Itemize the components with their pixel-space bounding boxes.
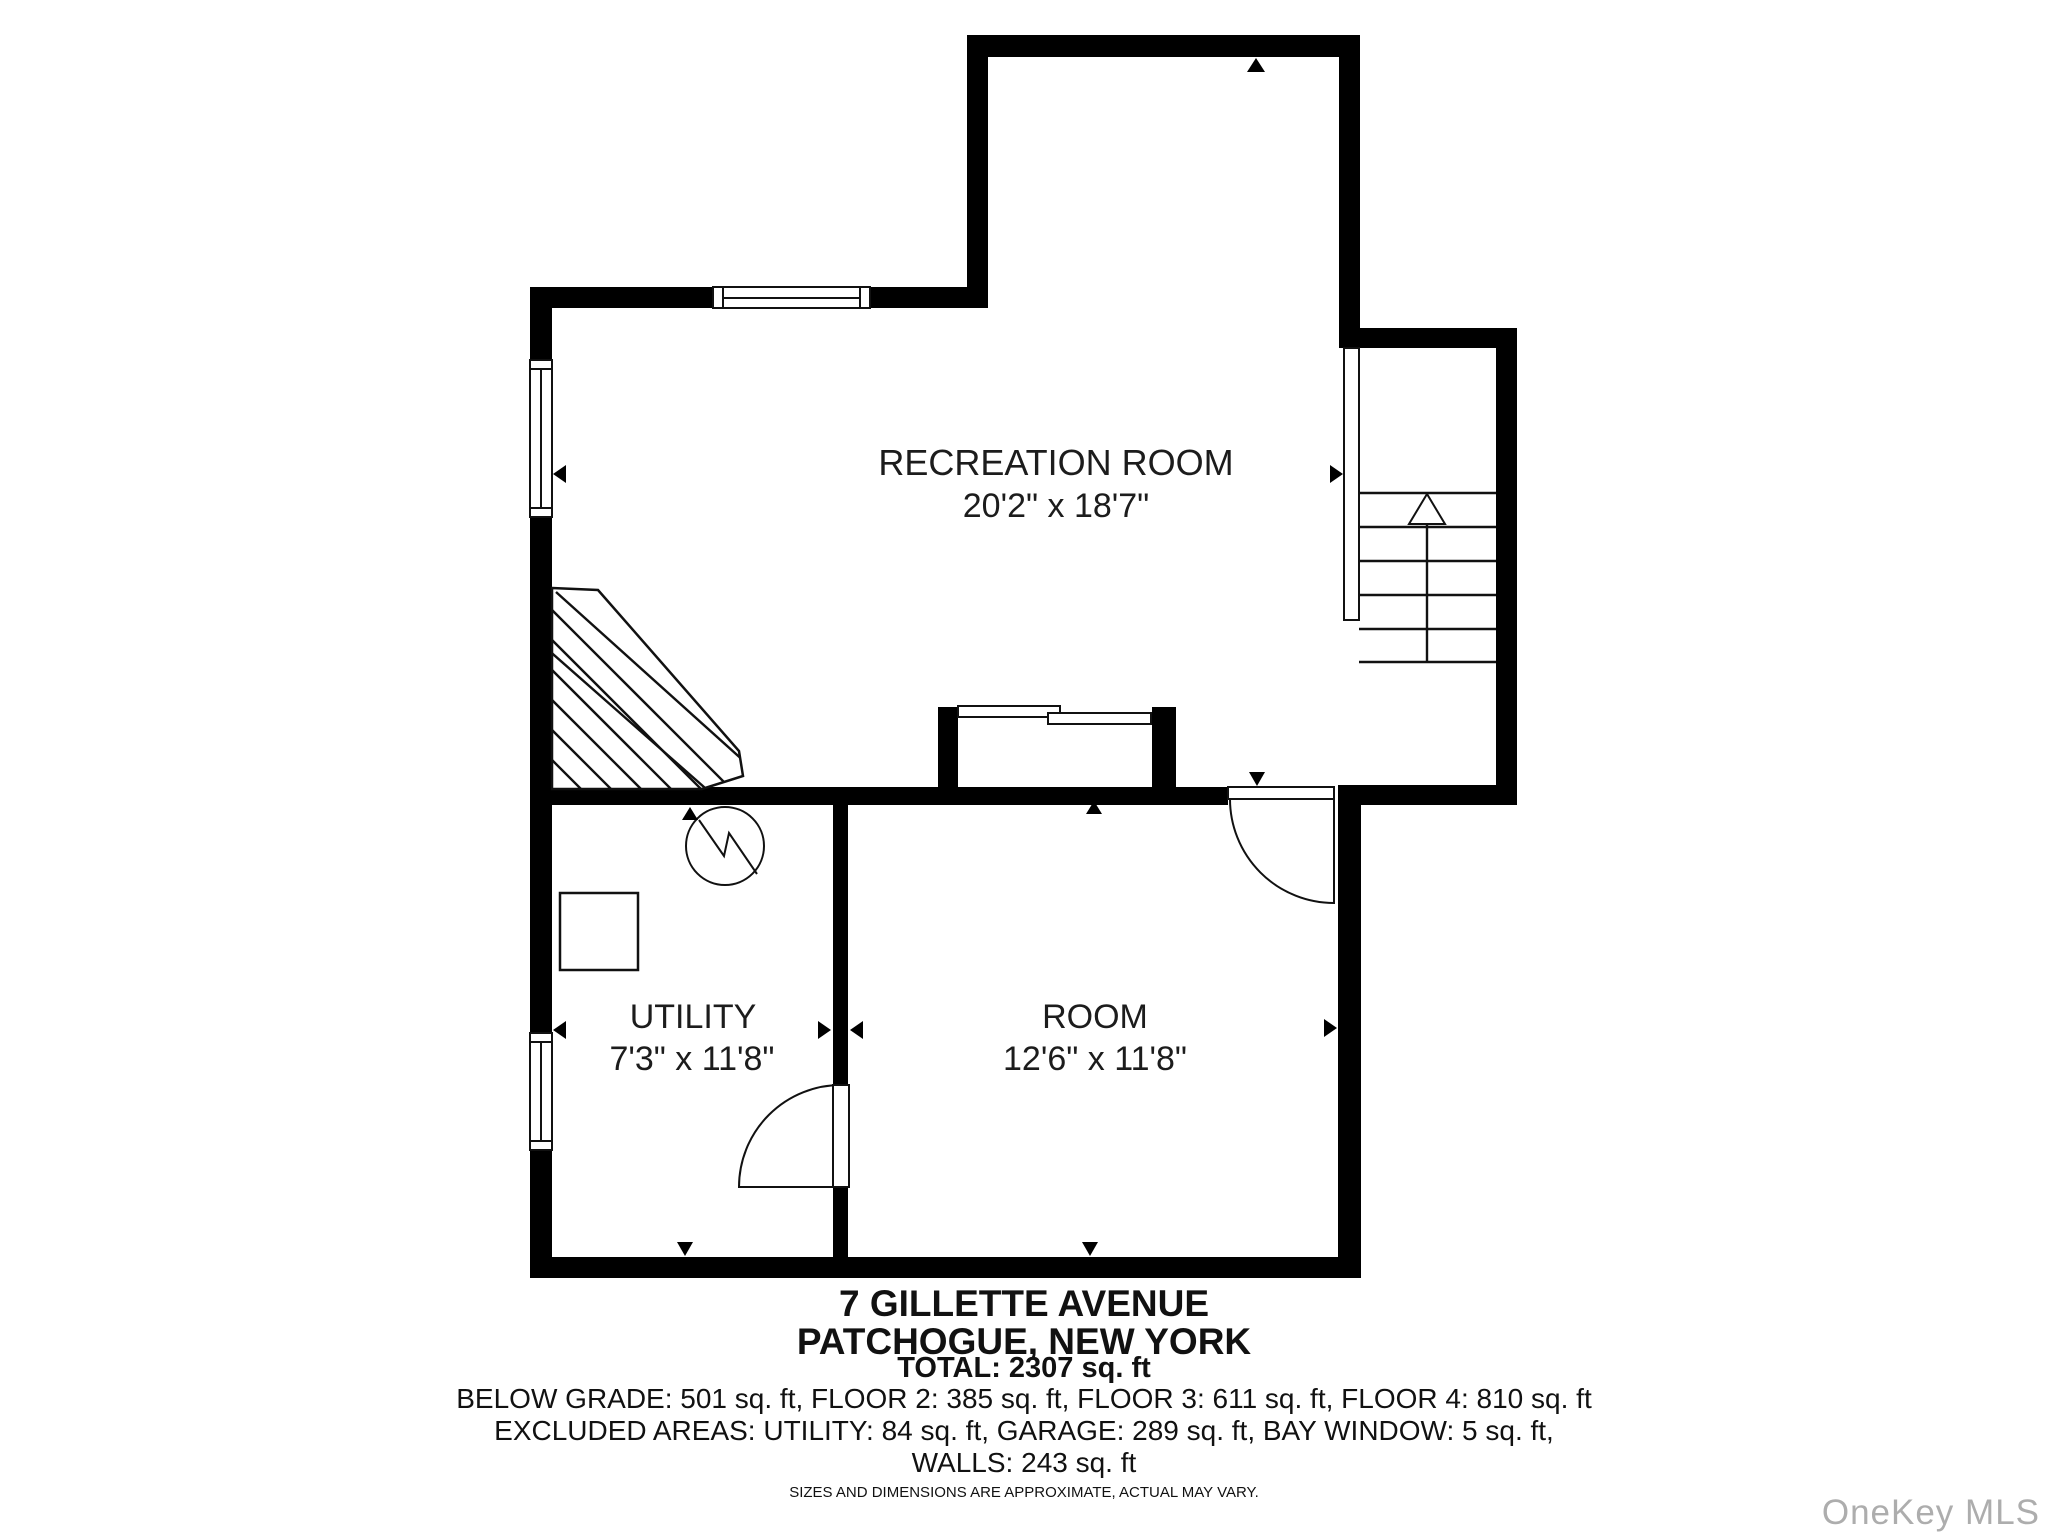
address-line1: 7 GILLETTE AVENUE	[839, 1283, 1209, 1324]
wall-protrusion-left	[967, 35, 988, 308]
marker-up-icon	[1247, 58, 1265, 72]
bay-sliding-window-icon	[958, 706, 1151, 724]
marker-right-icon	[1330, 465, 1343, 483]
marker-up-icon	[682, 807, 698, 820]
marker-right-icon	[1324, 1019, 1337, 1037]
marker-left-icon	[553, 1021, 566, 1039]
marker-left-icon	[553, 465, 566, 483]
utility-symbols	[560, 807, 764, 970]
wall-utility-divider-upper	[833, 805, 848, 1085]
window-icon	[713, 287, 870, 308]
wall-bay-pillar-right	[1152, 707, 1176, 789]
utility-room-dimensions: 7'3" x 11'8"	[609, 1040, 774, 1078]
marker-down-icon	[677, 1242, 693, 1256]
doors	[739, 787, 1334, 1187]
marker-down-icon	[1249, 772, 1265, 786]
stairs-up-arrow-icon	[1409, 494, 1445, 662]
floor-plan-page: RECREATION ROOM 20'2" x 18'7" UTILITY 7'…	[0, 0, 2048, 1536]
wall-stairwell-bottom	[1360, 785, 1517, 805]
floor-areas: BELOW GRADE: 501 sq. ft, FLOOR 2: 385 sq…	[456, 1383, 1592, 1414]
disclaimer: SIZES AND DIMENSIONS ARE APPROXIMATE, AC…	[789, 1484, 1259, 1501]
electrical-panel-icon	[686, 807, 764, 885]
onekey-mls-watermark: OneKey MLS	[1822, 1493, 2040, 1532]
total-area: TOTAL: 2307 sq. ft	[897, 1352, 1151, 1384]
marker-left-icon	[850, 1021, 863, 1039]
wall-utility-divider-lower	[833, 1187, 848, 1257]
room-label: ROOM	[1042, 998, 1148, 1036]
floor-plan-drawing: RECREATION ROOM 20'2" x 18'7" UTILITY 7'…	[0, 0, 2048, 1536]
marker-right-icon	[818, 1021, 831, 1039]
recreation-room-label: RECREATION ROOM	[878, 442, 1233, 483]
wall-protrusion-top	[967, 35, 1360, 57]
door-swing-icon	[739, 1085, 849, 1187]
recreation-room-dimensions: 20'2" x 18'7"	[963, 487, 1149, 525]
wall-bay-pillar-left	[938, 707, 958, 789]
wall-stairwell-top	[1360, 328, 1517, 348]
walls	[530, 35, 1517, 1278]
walls-area: WALLS: 243 sq. ft	[912, 1447, 1137, 1478]
wall-protrusion-right	[1339, 35, 1360, 348]
stair-open-edge	[1344, 348, 1359, 620]
door-swing-icon	[1228, 787, 1334, 903]
room-dimensions: 12'6" x 11'8"	[1003, 1040, 1187, 1078]
wall-room-right	[1338, 785, 1361, 1278]
excluded-areas: EXCLUDED AREAS: UTILITY: 84 sq. ft, GARA…	[494, 1415, 1554, 1446]
stairs-right	[1344, 348, 1496, 662]
equipment-box-icon	[560, 893, 638, 970]
wall-right-outer	[1496, 328, 1517, 805]
marker-down-icon	[1082, 1242, 1098, 1256]
wall-bottom-outer	[530, 1257, 1361, 1278]
footer-text: 7 GILLETTE AVENUE PATCHOGUE, NEW YORK TO…	[456, 1283, 1592, 1501]
window-icon	[530, 1033, 552, 1150]
window-icon	[530, 360, 552, 517]
utility-room-label: UTILITY	[630, 998, 757, 1036]
